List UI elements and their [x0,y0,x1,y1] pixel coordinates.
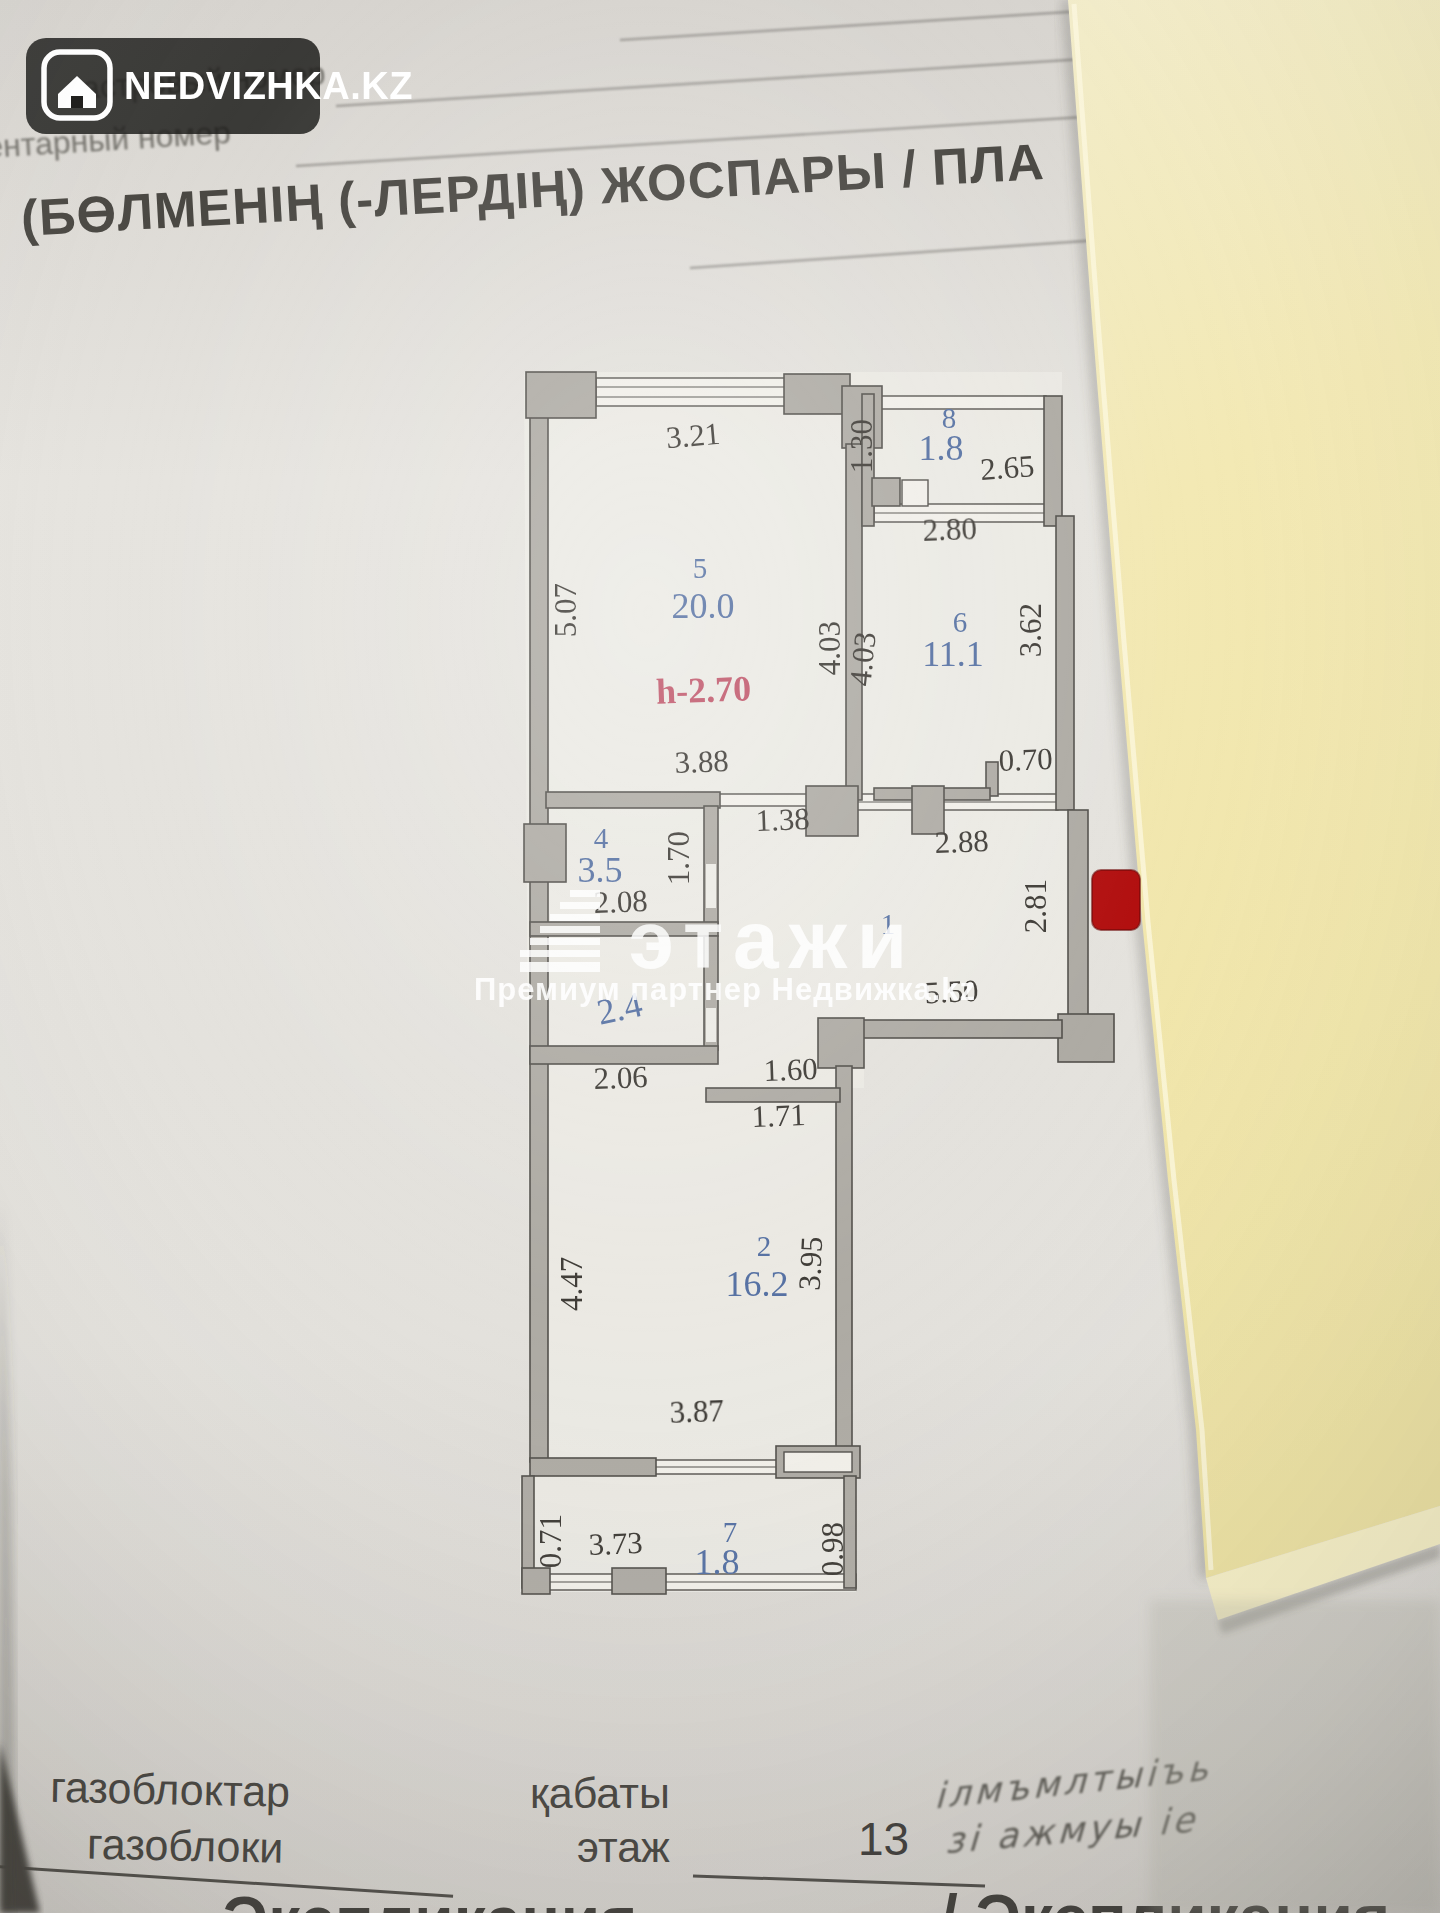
document-photo-canvas: дастровый номер ентарный номер (БӨЛМЕНІҢ… [0,0,1440,1913]
photo-vignette [0,0,1440,1913]
photographed-floor-plan-document: дастровый номер ентарный номер (БӨЛМЕНІҢ… [0,0,1440,1913]
